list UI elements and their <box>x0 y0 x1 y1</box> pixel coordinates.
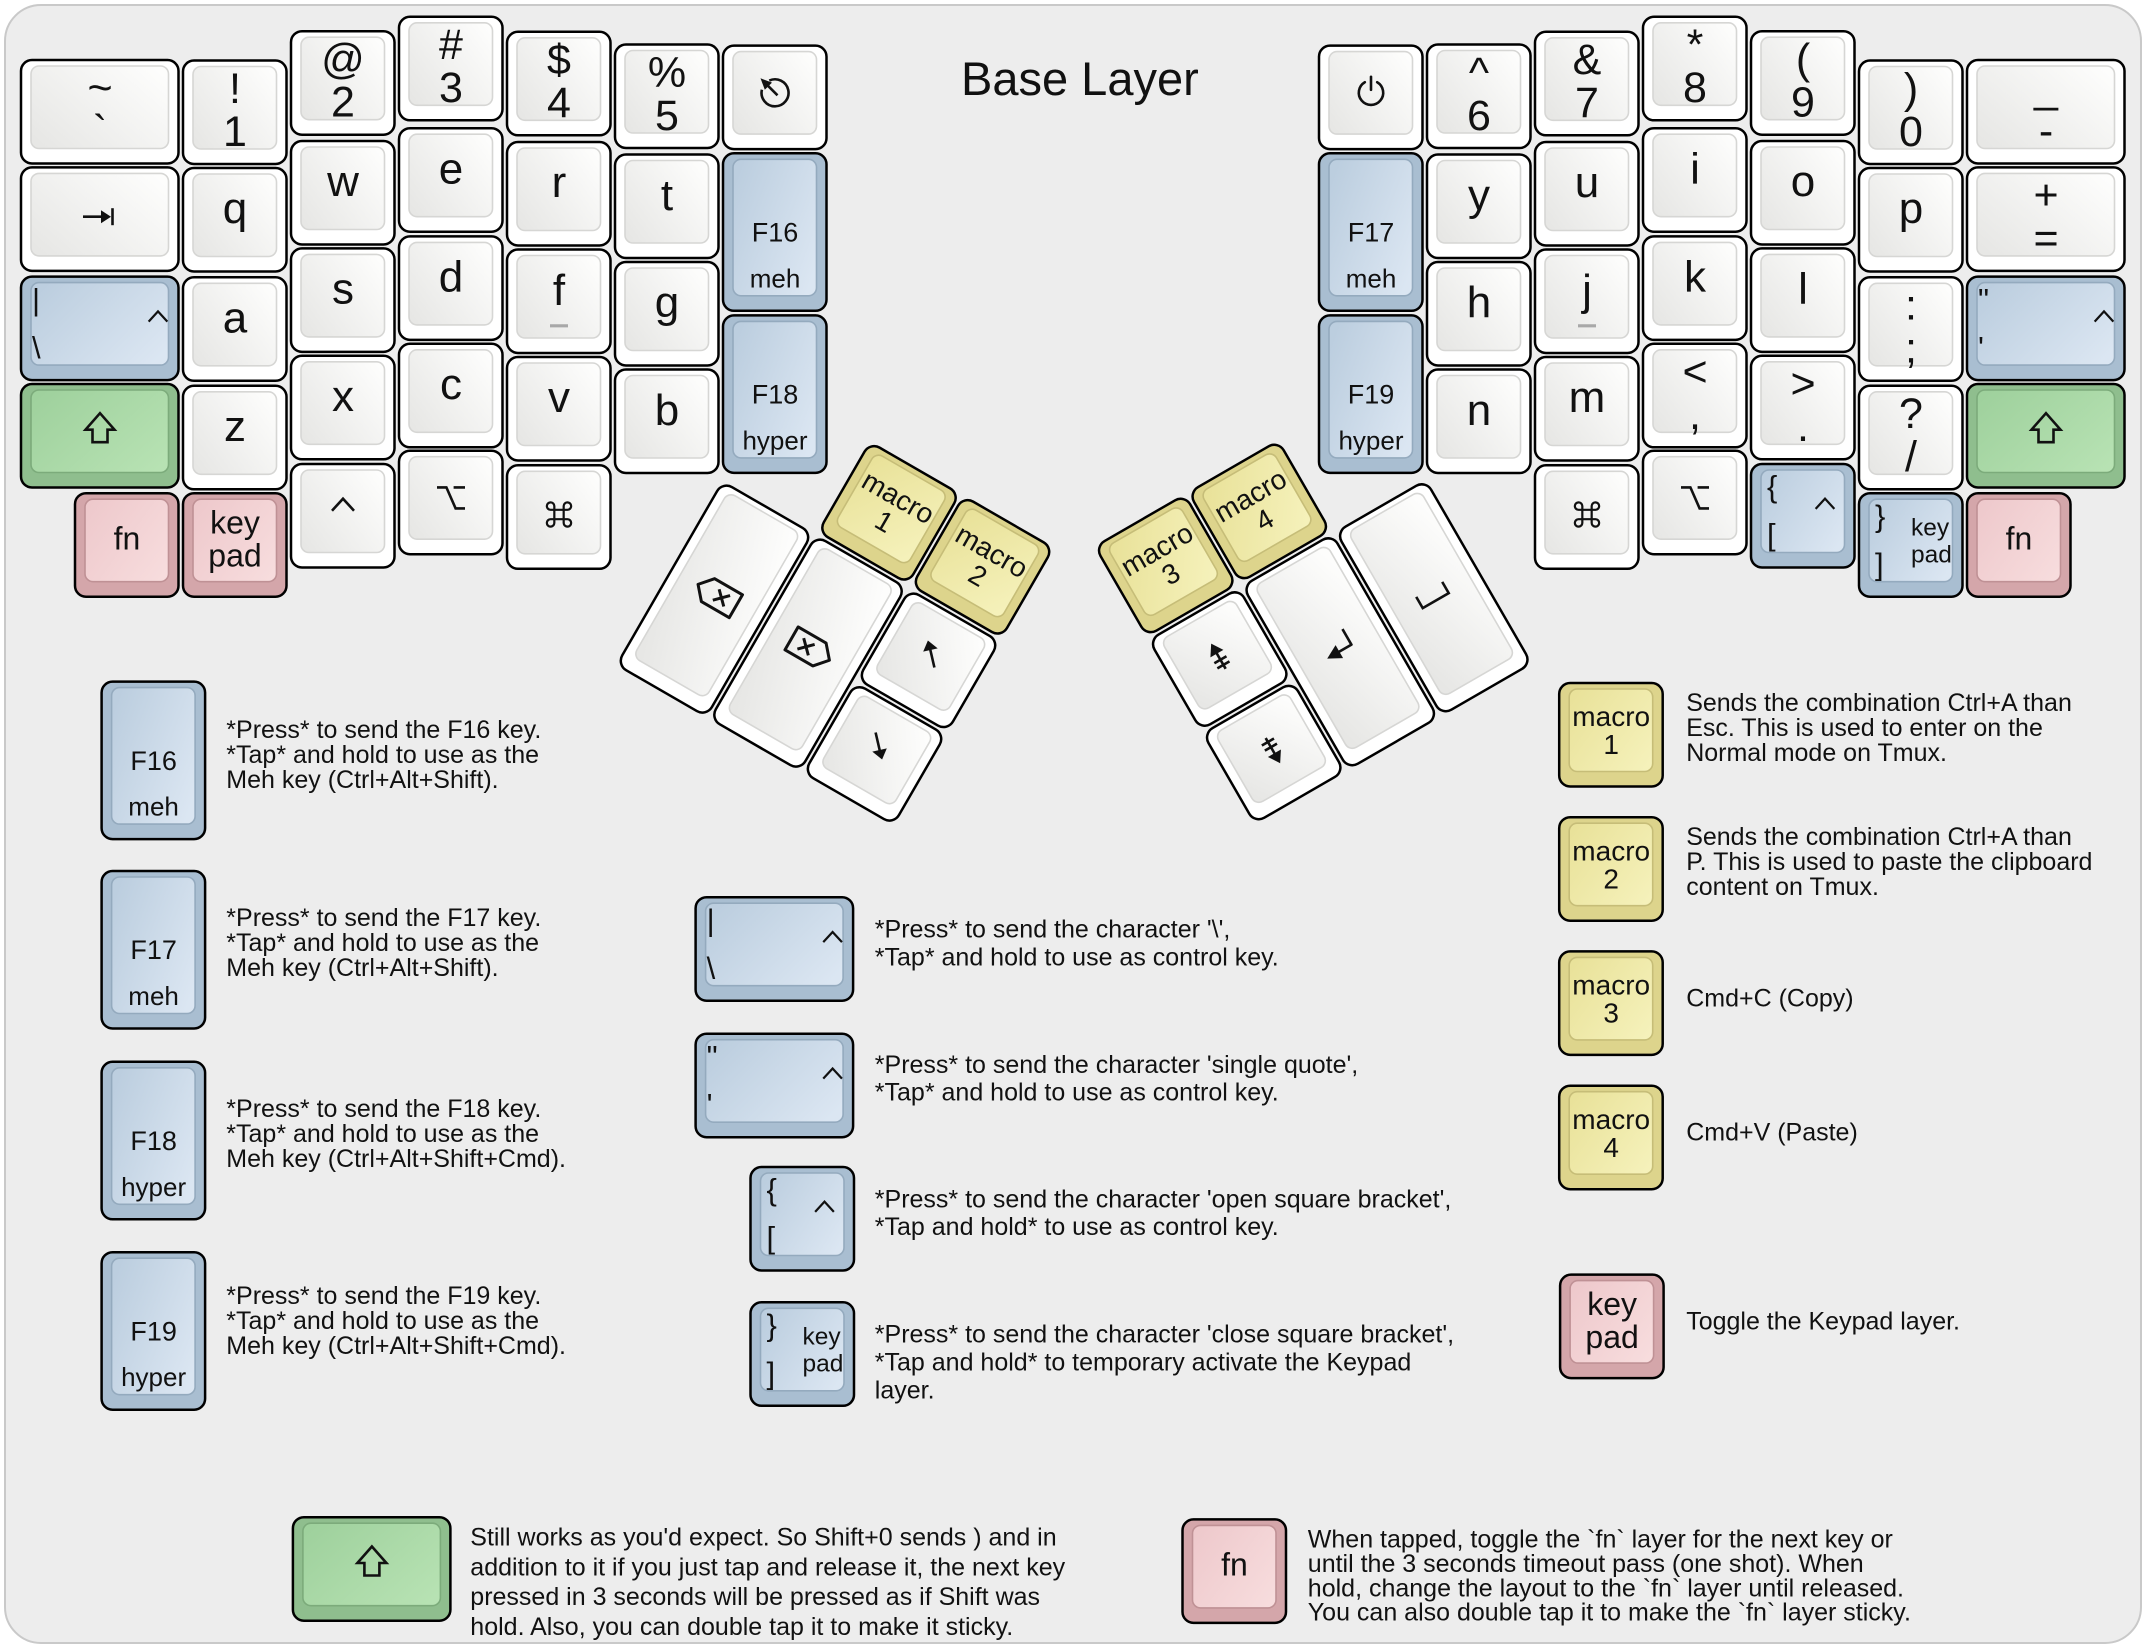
svg-text:': ' <box>707 1087 713 1122</box>
svg-text:l: l <box>1798 265 1808 314</box>
svg-text:2: 2 <box>331 79 355 127</box>
svg-text:|: | <box>32 282 40 317</box>
svg-text:`: ` <box>93 107 107 155</box>
svg-text:w: w <box>326 157 359 206</box>
svg-text:hyper: hyper <box>742 425 807 455</box>
svg-text:t: t <box>661 171 673 220</box>
svg-text:x: x <box>332 372 354 421</box>
svg-text:;: ; <box>1905 325 1917 373</box>
svg-text:i: i <box>1690 144 1700 193</box>
svg-text:meh: meh <box>1346 263 1397 293</box>
svg-text:\: \ <box>32 330 41 365</box>
svg-text:u: u <box>1575 158 1599 207</box>
svg-text:1: 1 <box>1603 729 1619 760</box>
svg-text:/: / <box>1905 433 1917 481</box>
svg-text:j: j <box>1580 266 1592 315</box>
svg-text:z: z <box>224 402 246 451</box>
svg-text:fn: fn <box>1221 1547 1248 1583</box>
svg-text:?: ? <box>1899 390 1923 438</box>
svg-text:fn: fn <box>114 521 141 557</box>
svg-text:4: 4 <box>1603 1132 1619 1163</box>
svg-text:[: [ <box>1767 517 1776 552</box>
svg-text:{: { <box>767 1172 777 1207</box>
svg-text:hyper: hyper <box>1338 425 1403 455</box>
svg-text:=: = <box>2033 215 2058 263</box>
svg-text:o: o <box>1791 157 1815 206</box>
svg-text:~: ~ <box>87 64 112 112</box>
svg-text:2: 2 <box>1603 864 1619 895</box>
svg-text:!: ! <box>229 65 241 113</box>
svg-text:macro: macro <box>1572 701 1650 732</box>
svg-text:pad: pad <box>803 1351 844 1378</box>
svg-text:F19: F19 <box>130 1317 177 1347</box>
svg-text:Cmd+C (Copy): Cmd+C (Copy) <box>1686 984 1853 1012</box>
svg-text:f: f <box>553 266 566 315</box>
svg-text:hyper: hyper <box>121 1172 186 1202</box>
svg-text:*Press* to send the character: *Press* to send the character '\',*Tap* … <box>875 916 1279 972</box>
svg-text:,: , <box>1689 391 1701 439</box>
svg-text:@: @ <box>321 36 365 84</box>
svg-text:>: > <box>1790 360 1815 408</box>
svg-text:5: 5 <box>655 92 679 140</box>
svg-text:{: { <box>1767 469 1777 504</box>
svg-text:<: < <box>1682 348 1707 396</box>
svg-text:(: ( <box>1796 36 1811 84</box>
svg-text:\: \ <box>707 951 716 986</box>
svg-text:c: c <box>440 360 462 409</box>
svg-text:0: 0 <box>1899 108 1923 156</box>
svg-text:key: key <box>210 505 260 541</box>
svg-text:F19: F19 <box>1348 380 1395 410</box>
svg-text:|: | <box>707 903 715 938</box>
svg-text:}: } <box>1875 499 1885 534</box>
svg-text:7: 7 <box>1575 79 1599 127</box>
svg-text:F16: F16 <box>752 218 799 248</box>
svg-text:q: q <box>223 184 247 233</box>
svg-text:}: } <box>767 1308 777 1343</box>
svg-text:key: key <box>1911 515 1950 542</box>
svg-text:^: ^ <box>1469 49 1489 97</box>
svg-text:F16: F16 <box>130 746 177 776</box>
svg-text:[: [ <box>767 1220 776 1255</box>
svg-text:*: * <box>1687 21 1704 69</box>
svg-text:F18: F18 <box>752 380 799 410</box>
svg-text:v: v <box>548 373 570 422</box>
svg-text:meh: meh <box>128 981 179 1011</box>
svg-text:F17: F17 <box>1348 218 1395 248</box>
svg-text:g: g <box>655 278 679 327</box>
svg-text:#: # <box>439 21 463 69</box>
svg-text:d: d <box>439 253 463 302</box>
svg-text:y: y <box>1468 171 1490 220</box>
svg-text:]: ] <box>767 1356 776 1391</box>
svg-text:macro: macro <box>1572 836 1650 867</box>
svg-text:hyper: hyper <box>121 1362 186 1392</box>
svg-text:Still works as you'd expect. S: Still works as you'd expect. So Shift+0 … <box>470 1524 1065 1641</box>
svg-text:key: key <box>1587 1286 1637 1322</box>
svg-text:': ' <box>1978 330 1984 365</box>
svg-text:+: + <box>2033 172 2058 220</box>
svg-text:): ) <box>1904 65 1918 113</box>
svg-text:9: 9 <box>1791 79 1815 127</box>
svg-text:meh: meh <box>128 792 179 822</box>
svg-text:&: & <box>1573 36 1602 84</box>
svg-text:Base Layer: Base Layer <box>961 52 1199 105</box>
svg-text:Cmd+V (Paste): Cmd+V (Paste) <box>1686 1119 1858 1147</box>
svg-text:e: e <box>439 144 463 193</box>
svg-text:Toggle the Keypad layer.: Toggle the Keypad layer. <box>1686 1308 1960 1336</box>
svg-text:-: - <box>2039 107 2053 155</box>
svg-text:F18: F18 <box>130 1126 177 1156</box>
svg-text:*Press* to send the F17 key.*T: *Press* to send the F17 key.*Tap* and ho… <box>226 904 541 982</box>
svg-text:p: p <box>1899 184 1923 233</box>
svg-text:": " <box>1978 282 1989 317</box>
svg-text:3: 3 <box>1603 998 1619 1029</box>
svg-text:meh: meh <box>750 263 801 293</box>
svg-text:b: b <box>655 386 679 435</box>
svg-text:h: h <box>1467 278 1491 327</box>
svg-text::: : <box>1905 282 1917 330</box>
svg-text:*Press* to send the F16 key.*T: *Press* to send the F16 key.*Tap* and ho… <box>226 716 541 794</box>
svg-text:m: m <box>1569 373 1606 422</box>
svg-text:s: s <box>332 265 354 314</box>
svg-text:3: 3 <box>439 64 463 112</box>
svg-text:4: 4 <box>547 79 571 127</box>
svg-text:_: _ <box>2033 64 2059 112</box>
svg-text:pad: pad <box>208 538 261 574</box>
svg-text:*Press* to send the F19 key.*T: *Press* to send the F19 key.*Tap* and ho… <box>226 1282 566 1360</box>
svg-text:6: 6 <box>1467 92 1491 140</box>
svg-text:macro: macro <box>1572 970 1650 1001</box>
svg-text:.: . <box>1797 403 1809 451</box>
svg-text:pad: pad <box>1911 542 1952 569</box>
svg-text:]: ] <box>1875 547 1884 582</box>
svg-text:": " <box>707 1039 718 1074</box>
svg-text:$: $ <box>547 36 571 84</box>
svg-text:key: key <box>803 1324 842 1351</box>
svg-text:n: n <box>1467 386 1491 435</box>
svg-text:1: 1 <box>223 108 247 156</box>
svg-text:r: r <box>552 158 567 207</box>
svg-text:fn: fn <box>2006 521 2033 557</box>
svg-text:a: a <box>223 294 248 343</box>
svg-text:F17: F17 <box>130 935 177 965</box>
svg-text:%: % <box>648 49 686 97</box>
svg-text:When tapped, toggle the `fn` l: When tapped, toggle the `fn` layer for t… <box>1308 1526 1911 1627</box>
svg-text:macro: macro <box>1572 1104 1650 1135</box>
svg-text:8: 8 <box>1683 64 1707 112</box>
svg-text:*Press* to send the F18 key.*T: *Press* to send the F18 key.*Tap* and ho… <box>226 1095 566 1173</box>
svg-text:k: k <box>1684 253 1707 302</box>
svg-text:pad: pad <box>1585 1319 1638 1355</box>
